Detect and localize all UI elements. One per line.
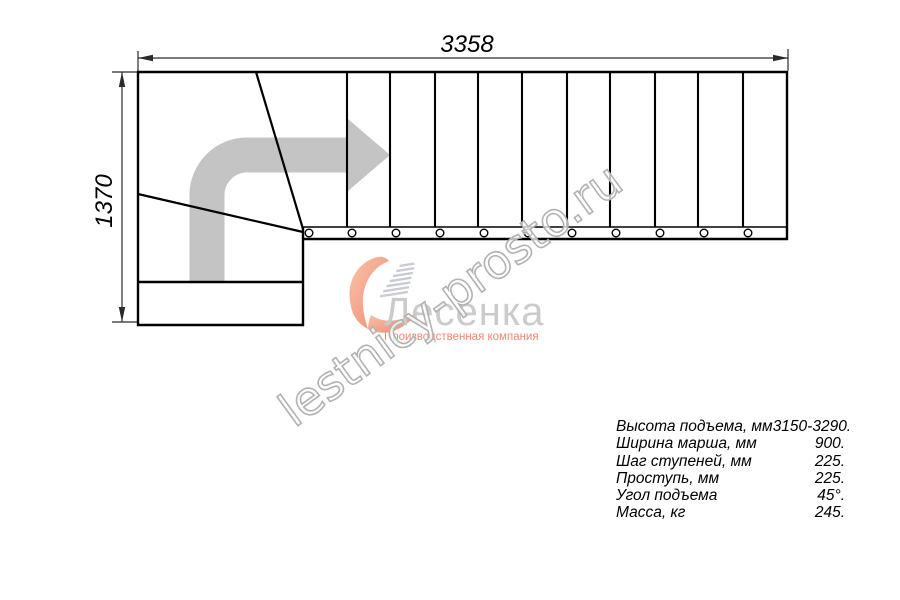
spec-label: Угол подъема (616, 487, 717, 504)
dim-arrow-down-icon (119, 307, 125, 322)
spec-row-mass: Масса, кг 245. (616, 504, 845, 521)
spec-label: Ширина марша, мм (616, 435, 757, 452)
spec-value: 45°. (817, 487, 845, 504)
staircase-drawing-page: 3358 1370 (0, 0, 900, 600)
dimension-width: 3358 (138, 31, 788, 71)
spec-table: Высота подъема, мм 3150-3290. Ширина мар… (616, 418, 845, 522)
dimension-width-label: 3358 (440, 31, 494, 58)
spec-row-angle: Угол подъема 45°. (616, 487, 845, 504)
spec-label: Проступь, мм (616, 470, 719, 487)
spec-value: 900. (815, 435, 845, 452)
dim-arrow-left-icon (138, 55, 153, 61)
spec-label: Шаг ступеней, мм (616, 453, 752, 470)
spec-row-tread: Проступь, мм 225. (616, 470, 845, 487)
spec-label: Высота подъема, мм (616, 418, 773, 435)
direction-arrow-icon (207, 119, 390, 281)
spec-label: Масса, кг (616, 504, 685, 521)
spec-row-height: Высота подъема, мм 3150-3290. (616, 418, 845, 435)
spec-row-step-pitch: Шаг ступеней, мм 225. (616, 453, 845, 470)
dim-arrow-right-icon (773, 55, 788, 61)
dim-arrow-up-icon (119, 72, 125, 87)
dimension-height: 1370 (91, 72, 137, 322)
dimension-height-label: 1370 (91, 174, 118, 228)
spec-value: 3150-3290. (773, 418, 851, 435)
spec-value: 225. (815, 453, 845, 470)
watermark: lestnicy-prosto.ru (269, 153, 632, 438)
spec-value: 225. (815, 470, 845, 487)
spec-value: 245. (815, 504, 845, 521)
spec-row-flight-width: Ширина марша, мм 900. (616, 435, 845, 452)
